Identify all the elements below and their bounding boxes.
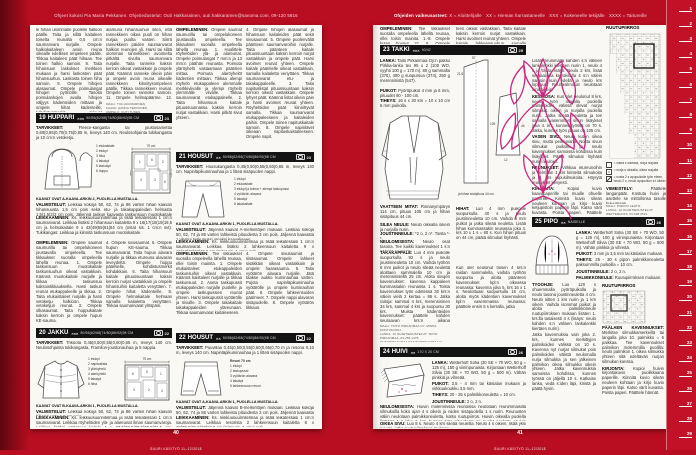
gauge-block: TIHEYS: 16 s x 20 krs = 10 x 10 cm 6 mm … (380, 99, 450, 109)
beanie-sketch (532, 231, 572, 277)
instruction-paragraph: OMPELEMINEN: Ompele saumat saumurilla ta… (176, 28, 242, 121)
sewing-steps-column: 4. Ompele sivusaumat ja sisäsaumat. Ompe… (246, 252, 314, 330)
paragraph-body: 3 mm ja 3,5 mm tai käsialan mukaan. (594, 251, 663, 256)
photo-number: 22 (165, 331, 169, 336)
needles-block: PUIKOT: Pyöröpuikot 4 mm ja 6 mm, pituud… (380, 89, 450, 99)
paragraph-body: Luo 120 s ohuemmalla pyöröpuikolla ja ne… (532, 283, 596, 331)
paragraph-heading: TIHEYS: (432, 392, 449, 397)
measurement-label: 57 (472, 56, 476, 60)
layout-width-label: 70 cm (147, 144, 156, 148)
paragraph-heading: JOUSTINNEULE: (380, 232, 414, 236)
left-page-header: Ohjeet kokosi Pia Maria Pekkanen. Ohjeti… (30, 13, 322, 18)
difficulty-level-4: XXXX = Taitureille (609, 13, 647, 18)
supplies-block: TARVIKKEET: Fleece-kangasta tai joustosa… (36, 126, 172, 141)
chart-title: RUUTUPIIRROS (602, 283, 664, 288)
right-page: OMPELEMINEN: Tee tikkaukset suoralla omp… (373, 25, 668, 429)
difficulty-level-2: XX = Hieman harrastaneelle (486, 13, 545, 18)
camera-icon (296, 154, 305, 161)
ruler-number: 24 (679, 355, 692, 362)
magazine-spread: { "colors":{"bg":"#b90e21","bar_bg":"#14… (0, 0, 696, 450)
ruler-number: 28 (679, 416, 692, 423)
ruler-number: 13 (679, 188, 692, 195)
pattern-number: 20 (39, 330, 46, 336)
pattern-number: 19 (39, 115, 46, 121)
paragraph-body: teen oikeat vastakkain. Taita kaitale ka… (456, 27, 526, 44)
right-page-footer: 41 SUURI KÄSITYÖ 11–12/2018 (440, 431, 600, 455)
trousers-sketch (176, 358, 226, 398)
layout-piece-number: 1 (139, 160, 141, 164)
piece-item: 6 huppu (96, 169, 128, 174)
paragraph-heading: JOUSTINNEULE: (432, 399, 466, 404)
pattern-number: 23 (383, 47, 390, 53)
pattern-sizes: 50/56(62/68(74/80(86/92(98 CM (86, 116, 139, 120)
column-text: OMPELEMINEN: Tee tikkaukset suoralla omp… (380, 27, 450, 44)
page-number: 40 (96, 431, 256, 437)
pipo-info-block: LANKA: Wetterhoff Sofia (30 SE + 70 WO, … (576, 231, 664, 281)
cutting-layout-diagram: 70 cm 6 5 1 3 2 4 (122, 356, 172, 402)
ruler-number: 19 (679, 279, 692, 286)
layout-piece-number: 3 (154, 178, 156, 182)
paragraph-body: 2 o, 2 n. (611, 269, 626, 274)
photo-number: 23 (307, 155, 311, 160)
ruler-number: 12 (679, 173, 692, 180)
layout-piece-number: 4 (161, 389, 163, 393)
pattern-number: 24 (383, 349, 390, 355)
pattern-name: HOUSUT (188, 154, 213, 160)
instruction-paragraph: alareuna hihansuuhun siten, että rannekk… (106, 28, 172, 101)
knitting-chart-grid (608, 32, 662, 160)
pattern-sheet-note: KAAVAT OVAT B-KAAVA-ARKIN 1, PUOLELLA MU… (36, 404, 176, 408)
pattern-sizes: 40/42 (422, 48, 431, 52)
fabric-grain-label: kangas (171, 168, 173, 179)
ruler-number: 20 (679, 294, 692, 301)
preparation-block: VALMISTELUT: Jäljennä kaavat A-merkintöj… (176, 228, 314, 240)
camera-icon (508, 349, 517, 356)
ruler-number: 7 (679, 97, 692, 104)
preparation-block: VALMISTELUT: Jäljennä kaavat B-merkintöj… (176, 406, 314, 416)
garment-measures-block: VAATTEEN MITAT: Rinnanympärys 114 cm, pi… (380, 205, 450, 223)
pattern-credits: MALLI: PIRKKO LEHTO. LANKA- JA OHJETIEDU… (606, 204, 666, 216)
measurement-label: 21,5 (457, 72, 463, 76)
ruler-number: 21 (679, 310, 692, 317)
ruler-number: 9 (679, 127, 692, 134)
paragraph-body: Ruutupiirroksen mukaan. (615, 275, 662, 280)
credit-line: LANKA- JA OHJETIEDUSTELUT: WETTERHOFF, 0… (606, 208, 666, 216)
paragraph-heading: JOUSTINNEULE: (576, 269, 610, 274)
paragraph-body: 4. Ompele sivusaumat. 5. Ompele hupun KE… (106, 241, 172, 309)
layout-piece-number: 5 (146, 370, 148, 374)
piece-list: Resori 70 cm 1 etukpl 2 taskupussi 3 vyö… (230, 359, 314, 389)
piece-item: 6 takakaitale (234, 202, 314, 207)
ruler-number: 4 (679, 51, 692, 58)
difficulty-stars: ×× (216, 155, 221, 160)
ruler-number: 6 (679, 82, 692, 89)
legend-text: = oikea s oikealla, nurja nurjalla (614, 162, 659, 166)
layout-piece-number: 2 (162, 160, 164, 164)
pattern-name: HUPPARI (48, 115, 75, 121)
sewing-steps-column: OMPELEMINEN: Ompele saumat saumurilla ta… (36, 241, 102, 326)
ruler-number: 23 (679, 340, 692, 347)
pattern-sheet-note: KAAVAT OVAT A-KAAVA-ARKIN 1, PUOLELLA MU… (176, 400, 316, 404)
instruction-paragraph: 4. Ompele hihojen alasaumat ja hihansuun… (246, 28, 314, 140)
camera-icon (296, 335, 305, 342)
stitch-block: SILEÄ NEULE: Neulo oikealla oikein ja nu… (380, 223, 450, 232)
coat-illustration (380, 111, 448, 203)
camera-icon (154, 115, 163, 122)
pattern-name: HUIVI (392, 349, 408, 355)
ruler-number: 3 (679, 36, 692, 43)
sewing-steps-column: OMPELEMINEN: Tee tikkaukset suoralla omp… (176, 252, 242, 330)
paragraph-body: 20 - 25 s palmikkoneuletta = 10 cm. (450, 392, 516, 397)
yarn-block: LANKA: Taito Pirkanmaa Oy:n paksu Pirkka… (380, 59, 450, 89)
ruler-number: 16 (679, 234, 692, 241)
pattern-sheet-note: KAAVAT OVAT A-KAAVA-ARKIN 1, PUOLELLA MU… (176, 222, 316, 226)
legend-symbol-purl (606, 169, 612, 175)
cutting-layout-diagram: 70 cm 1 5 2 4 3 6 kangas taite (130, 143, 172, 195)
column-text: le hihan ulommalle puolelle halkion pääl… (36, 28, 102, 112)
ruler-number: 14 (679, 203, 692, 210)
photo-number: 23 (165, 116, 169, 121)
preparation-block: VALMISTELUT: Leikkaa kokoja 50, 62, 74 j… (36, 203, 172, 216)
cutting-block: LEIKKAAMINEN: Ks. leikkuusuunnitelmaa ja… (36, 216, 172, 239)
credit-line: MALLI: TAITO PIRKANMAA OY, MINNA KONTUKO… (380, 324, 450, 332)
ruler-number: 27 (679, 401, 692, 408)
paragraph-body: Kun olet neulonut toisen 4 krs:n raidan … (456, 266, 526, 310)
continuation-block: Kun olet neulonut toisen 4 krs:n raidan … (456, 266, 526, 324)
paragraph-body: Kopioi huivin kirjontakuvio puolikkaana … (602, 366, 664, 395)
paragraph-heading: PUIKOT: (576, 251, 593, 256)
camera-icon (646, 219, 655, 226)
cutting-block: LEIKKAAMINEN: Ks. leikkuusuunnitelmaa ja… (36, 416, 172, 427)
huivi-info-block: LANKA: Wetterhoff Sofia (30 SE + 70 WO, … (432, 361, 526, 404)
hoodie-sketch (36, 143, 94, 193)
pattern-number: 21 (179, 154, 186, 160)
pattern-19-header-bar: 19 HUPPARI ××× 50/56(62/68(74/80(86/92(9… (36, 113, 172, 123)
finishing-block: VIIMEISTELY: Päättele langanpäät. Kostut… (606, 187, 666, 204)
difficulty-stars: ×× (411, 350, 416, 355)
legend-symbol-cable (606, 176, 612, 182)
legend-text: = nosta 2 s apupuikolle työn eteen, neul… (614, 176, 666, 183)
legend-symbol-knit (606, 162, 612, 168)
scarf-sketch (380, 361, 428, 401)
knitting-note-block: NEULOMISESTA: Neulo osat tasona. Tee kai… (380, 240, 450, 251)
pattern-number: 22 (179, 335, 186, 341)
pipo-chart-grid (602, 290, 646, 324)
chart-title: RUUTUPIIRROS (606, 25, 664, 30)
layout-piece-number: 4 (140, 178, 142, 182)
back-piece-block: TAKAKAPPALE: Luo 4 mm puikolle suopursul… (380, 251, 450, 323)
layout-piece-number: 6 (164, 180, 166, 184)
piece-item: 5 lahkeensuun resori (230, 384, 314, 389)
paragraph-body: Ompele saumat saumurilla tai ompelukonee… (176, 28, 242, 120)
printed-cm-ruler: 1 2 3 4 5 6 7 8 9 10 11 12 13 14 15 16 1… (666, 0, 696, 450)
ruler-number: 5 (679, 66, 692, 73)
layout-piece-number: 5 (151, 158, 153, 162)
paragraph-body: Ompele saumat saumurilla tai ompelukonee… (36, 241, 102, 323)
photo-number: 22 (307, 336, 311, 341)
cutting-block: LEIKKAAMINEN: Ks. leikkuusuunnitelmaa ja… (176, 240, 314, 251)
difficulty-level-1: X = Aloittelijalle (449, 13, 482, 18)
page-number: 41 (440, 431, 600, 437)
pattern-sizes: 50/56(62/68(74/80(86/92(98 CM (223, 155, 276, 159)
sewing-steps-column: 4. Ompele sivusaumat. 5. Ompele hupun KE… (106, 241, 172, 326)
ruler-number: 2 (679, 21, 692, 28)
chart-legend: = oikea s oikealla, nurja nurjalla = nur… (606, 162, 666, 186)
pattern-name: TAKKI (392, 47, 410, 53)
legend-text: = nurja s oikealla, oikea nurjalla (614, 169, 659, 173)
difficulty-stars: ×× (216, 336, 221, 341)
yarn-text: Taito Pirkanmaa Oy:n paksu Pirkka-lanka … (380, 59, 450, 83)
layout-width-label: 70 cm (143, 357, 152, 361)
pattern-name: HOUSUT (188, 335, 213, 341)
paragraph-body: Luo 4 mm puikolle suopursulla 92 s ja ne… (380, 251, 450, 323)
left-page: le hihan ulommalle puolelle halkion pääl… (30, 25, 322, 429)
column-text: 4. Ompele hihojen alasaumat ja hihansuun… (246, 28, 314, 148)
pattern-22-header-bar: 22 HOUSUT ×× 50/56(62/68(74/80(86/92(98 … (176, 333, 314, 343)
column-text: alareuna hihansuuhun siten, että rannekk… (106, 28, 172, 101)
instruction-paragraph: le hihan ulommalle puolelle halkion pääl… (36, 28, 102, 112)
jacket-sketch (36, 356, 86, 400)
piece-list: 1 etukpl 2 etukaistale 3 etukpl ja kulma… (234, 177, 314, 207)
supplies-block: TARVIKKEET: Puuvillaa 0,45(0,50(0,55(0,6… (176, 346, 314, 357)
piece-list: 1 etukpl 2 napituslista 3 yläröyhelö 4 a… (88, 357, 118, 387)
paragraph-body: Merkitse silmukkamerkeillä tai langalla … (602, 330, 664, 364)
piece-item: 6 hiha (88, 382, 118, 387)
difficulty-level-3: XXX = Kokeneelle tekijälle (549, 13, 604, 18)
difficulty-stars: ××× (71, 331, 78, 336)
pattern-sizes: 50/56(62/68(74/80(86/92(98 CM (80, 331, 133, 335)
supplies-block: TARVIKKEET: Trikoota 0,45(0,50(0,55(0,60… (36, 341, 172, 355)
ruler-number: 11 (679, 158, 692, 165)
ruler-number: 10 (679, 142, 692, 149)
paragraph-heading: PALMIKKONEULE: (576, 275, 614, 280)
difficulty-legend-prefix: Ohjeiden vaikeusasteet: (394, 13, 448, 18)
rib-block: JOUSTINNEULE: *2 o, 2 n*. Toista *-*. (380, 232, 450, 240)
credit-line: LANKA- JA OHJETIEDUSTELUT: TAITO PIRKANM… (380, 332, 450, 342)
pattern-21-header-bar: 21 HOUSUT ×× 50/56(62/68(74/80(86/92(98 … (176, 152, 314, 162)
pipo-instructions-column: TYÖOHJE: Luo 120 s ohuemmalla pyöröpuiko… (532, 283, 596, 425)
layout-piece-number: 6 (132, 372, 134, 376)
ruler-number: 22 (679, 325, 692, 332)
column-text: teen oikeat vastakkain. Taita kaitale ka… (456, 27, 526, 44)
pattern-sheet-note: KAAVAT OVAT A-KAAVA-ARKIN 2, PUOLELLA MU… (36, 197, 176, 201)
camera-icon (154, 330, 163, 337)
paragraph-body: 4. Ompele sivusaumat ja sisäsaumat. Ompe… (246, 252, 314, 311)
magazine-spine-edge (0, 0, 30, 450)
fold-label: taite (130, 170, 132, 176)
paragraph-body: Jatka kavennuksia vain joka 2. krs, kunn… (532, 333, 596, 392)
ruler-number: 17 (679, 249, 692, 256)
difficulty-stars: ××× (413, 48, 420, 53)
ruler-number: 1 (679, 6, 692, 13)
ruler-number: 15 (679, 218, 692, 225)
ruler-number: 8 (679, 112, 692, 119)
pattern-sizes: 50/56(62/68(74/80(86/92(98 CM (223, 336, 276, 340)
column-text: OMPELEMINEN: Ompele saumat saumurilla ta… (176, 28, 242, 148)
ruler-number: 29 (679, 431, 692, 438)
pattern-name: JAKKU (48, 330, 69, 336)
pattern-credits: MALLI: TAITO PIRKANMAA OY, MINNA KONTUKO… (380, 324, 450, 342)
layout-piece-number: 1 (160, 372, 162, 376)
ruler-edge-line (666, 0, 667, 450)
paragraph-body: 2 o, 2 n. (467, 399, 482, 404)
piece-list: 1 etukaistale 2 etukpl 3 hiha 4 takakpl … (96, 144, 128, 174)
left-page-footer: 40 SUURI KÄSITYÖ 11–12/2018 (96, 431, 256, 455)
tulip-embroidery-motif (491, 51, 595, 221)
photo-number: 26 (519, 350, 523, 355)
pipo-chart-column: RUUTUPIIRROS PÄÄLAEN KAVENNUKSET: Merkit… (602, 283, 664, 425)
supplies-block: TARVIKKEET: Housukangasta 0,45(0,50(0,55… (176, 165, 314, 175)
difficulty-stars: ××× (77, 116, 84, 121)
huivi-knitting-note: NEULOMISESTA: Huivin molemmissa reunoiss… (380, 405, 526, 421)
schematic-caption: ja hihan sisäpituus 44 cm. (457, 192, 495, 196)
right-page-header: Ohjeiden vaikeusasteet: X = Aloittelijal… (373, 13, 668, 18)
trousers-sketch (176, 176, 230, 220)
photo-number: 26 (657, 220, 661, 225)
ruler-number: 25 (679, 370, 692, 377)
cutting-block: LEIKKAAMINEN: Ks. leikkuusuunnitelmaa ja… (176, 416, 314, 427)
pattern-sizes: 170 X 20 CM (417, 350, 439, 354)
layout-piece-number: 2 (148, 388, 150, 392)
ruler-number: 26 (679, 386, 692, 393)
ruler-number: 18 (679, 264, 692, 271)
pattern-24-header-bar: 24 HUIVI ×× 170 X 20 CM 26 (380, 347, 526, 357)
pattern-20-header-bar: 20 JAKKU ××× 50/56(62/68(74/80(86/92(98 … (36, 328, 172, 338)
layout-piece-number: 3 (133, 388, 135, 392)
huivi-right-side-note: OIKEA SIVU: Luo 8 s. Neulo 4 krs sileää … (380, 422, 526, 428)
paragraph-body: Tee tikkaukset suoralla ompeleella lähel… (176, 252, 242, 315)
